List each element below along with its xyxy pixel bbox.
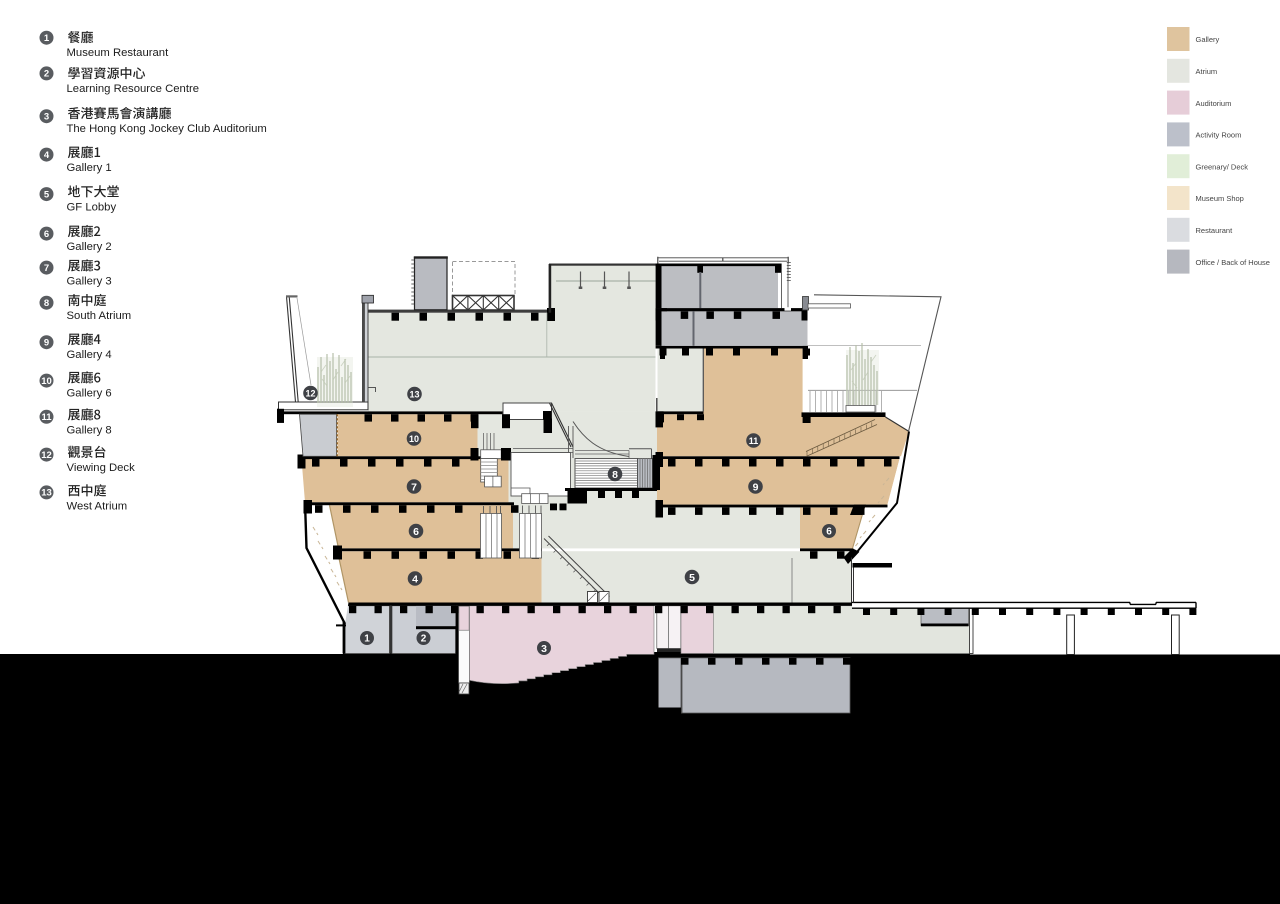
svg-text:9: 9	[753, 481, 759, 493]
svg-text:Gallery: Gallery	[1196, 35, 1220, 44]
svg-text:3: 3	[44, 111, 49, 122]
svg-text:11: 11	[41, 412, 52, 423]
svg-text:1: 1	[364, 633, 370, 644]
svg-text:3: 3	[541, 643, 547, 655]
svg-text:Activity Room: Activity Room	[1196, 131, 1242, 140]
svg-text:West Atrium: West Atrium	[67, 500, 128, 512]
svg-text:Learning Resource Centre: Learning Resource Centre	[67, 83, 200, 95]
svg-text:The Hong Kong Jockey Club Audi: The Hong Kong Jockey Club Auditorium	[67, 123, 267, 135]
svg-text:GF Lobby: GF Lobby	[67, 201, 117, 213]
svg-text:6: 6	[413, 526, 419, 538]
svg-text:Gallery 6: Gallery 6	[67, 387, 112, 399]
svg-text:13: 13	[41, 488, 52, 499]
svg-text:Auditorium: Auditorium	[1196, 99, 1232, 108]
svg-text:South Atrium: South Atrium	[67, 310, 132, 322]
svg-text:Gallery 3: Gallery 3	[67, 275, 112, 287]
svg-text:Gallery 1: Gallery 1	[67, 162, 112, 174]
svg-text:Museum Shop: Museum Shop	[1196, 194, 1244, 203]
svg-text:1: 1	[44, 33, 50, 44]
svg-text:Atrium: Atrium	[1196, 67, 1218, 76]
svg-text:Gallery 4: Gallery 4	[67, 349, 112, 361]
svg-text:13: 13	[409, 390, 419, 400]
svg-text:12: 12	[305, 389, 315, 399]
svg-text:Gallery 2: Gallery 2	[67, 241, 112, 253]
svg-text:5: 5	[689, 572, 695, 584]
svg-text:Museum Restaurant: Museum Restaurant	[67, 47, 170, 59]
svg-text:12: 12	[41, 450, 52, 461]
svg-text:Gallery 8: Gallery 8	[67, 424, 112, 436]
svg-text:8: 8	[612, 469, 618, 481]
svg-text:2: 2	[421, 633, 427, 644]
svg-text:Viewing Deck: Viewing Deck	[67, 462, 136, 474]
svg-text:4: 4	[412, 573, 418, 585]
svg-text:10: 10	[409, 434, 419, 444]
svg-text:6: 6	[826, 526, 832, 537]
svg-text:11: 11	[749, 436, 759, 446]
svg-text:4: 4	[44, 150, 50, 161]
svg-text:2: 2	[44, 69, 49, 80]
svg-text:7: 7	[411, 481, 417, 493]
svg-text:6: 6	[44, 229, 49, 240]
svg-text:7: 7	[44, 263, 49, 274]
svg-text:5: 5	[44, 189, 50, 200]
svg-text:Greenary/ Deck: Greenary/ Deck	[1196, 162, 1249, 171]
svg-text:Restaurant: Restaurant	[1196, 226, 1234, 235]
svg-text:8: 8	[44, 298, 49, 309]
svg-text:10: 10	[41, 376, 52, 387]
svg-text:9: 9	[44, 337, 49, 348]
svg-text:Office / Back of House: Office / Back of House	[1196, 258, 1270, 267]
